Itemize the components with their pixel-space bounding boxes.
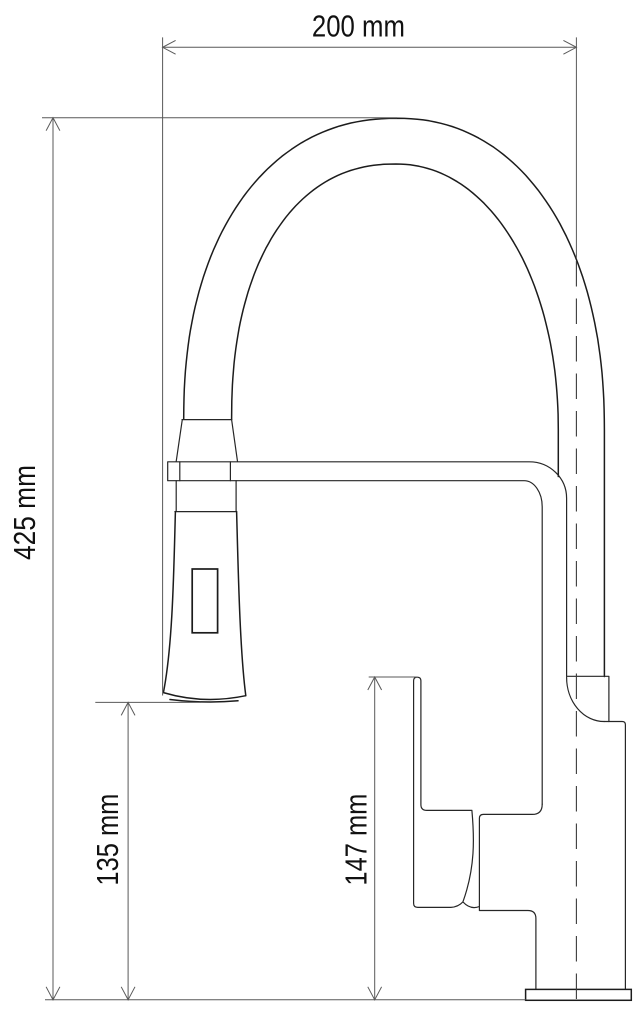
svg-text:135 mm: 135 mm bbox=[90, 794, 125, 886]
svg-text:147 mm: 147 mm bbox=[339, 794, 374, 886]
svg-text:425 mm: 425 mm bbox=[7, 465, 42, 560]
svg-text:200 mm: 200 mm bbox=[312, 8, 405, 43]
